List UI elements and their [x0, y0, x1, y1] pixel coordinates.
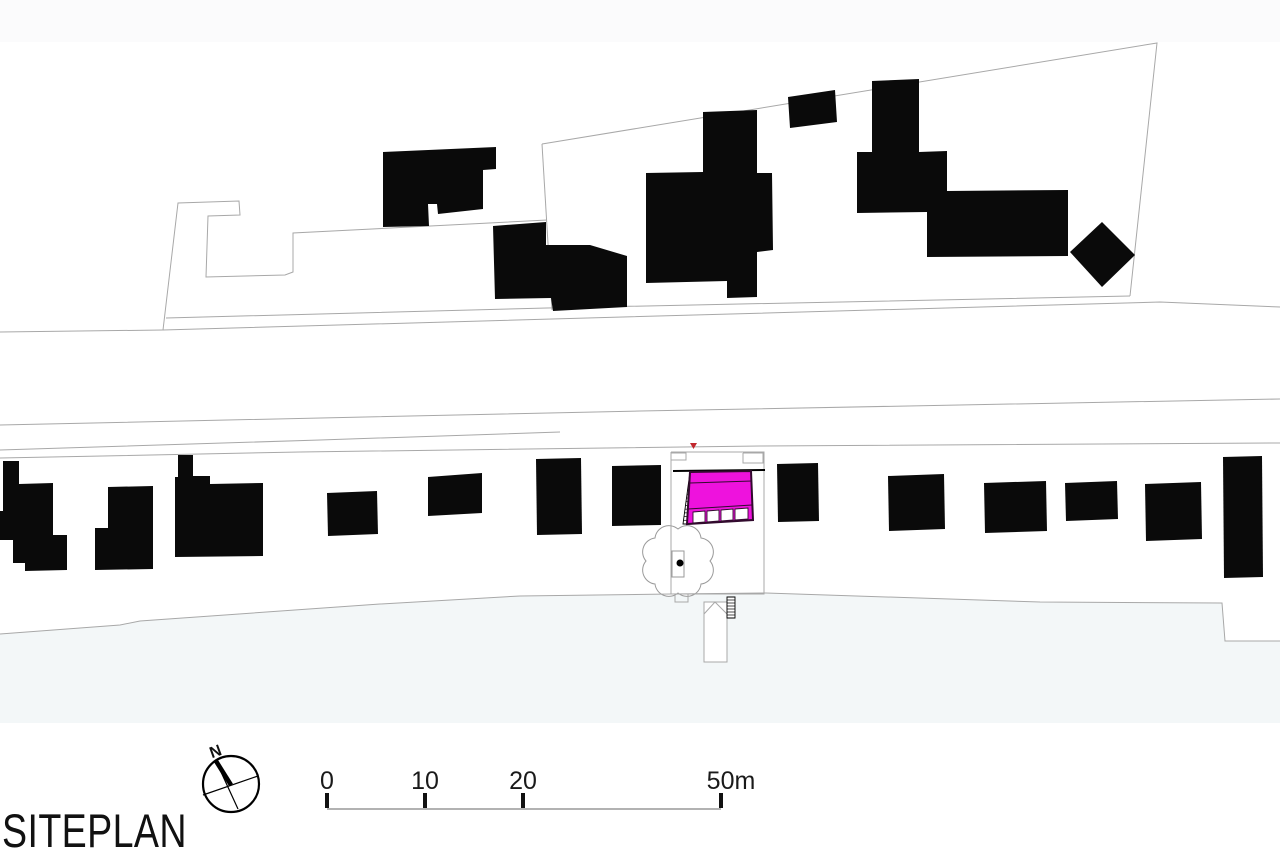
lower-building-5 [428, 473, 482, 516]
top-shading-band [0, 0, 1280, 42]
lower-building-8 [777, 463, 819, 522]
lower-building-6 [536, 458, 582, 535]
highlight-window [693, 511, 705, 523]
tree-trunk-dot [677, 560, 684, 567]
lower-building-11 [1065, 481, 1118, 521]
lower-building-4 [327, 491, 378, 536]
scale-bar-label: 50m [707, 767, 756, 795]
page-title: SITEPLAN [2, 805, 187, 854]
lower-building-7 [612, 465, 661, 526]
highlight-window [721, 509, 733, 521]
scale-bar-label: 0 [320, 767, 334, 795]
lower-building-9 [888, 474, 945, 531]
scale-bar-label: 20 [509, 767, 537, 795]
scale-bar-label: 10 [411, 767, 439, 795]
lower-building-12 [1145, 482, 1202, 541]
lower-building-13 [1223, 456, 1263, 578]
plan-geometry [0, 0, 1280, 854]
siteplan-canvas: N 0102050m SITEPLAN [0, 0, 1280, 854]
lower-building-10 [984, 481, 1047, 533]
highlight-window [707, 510, 719, 522]
siteplan-drawing: N 0102050m SITEPLAN [0, 0, 1280, 854]
highlight-window [735, 508, 748, 520]
